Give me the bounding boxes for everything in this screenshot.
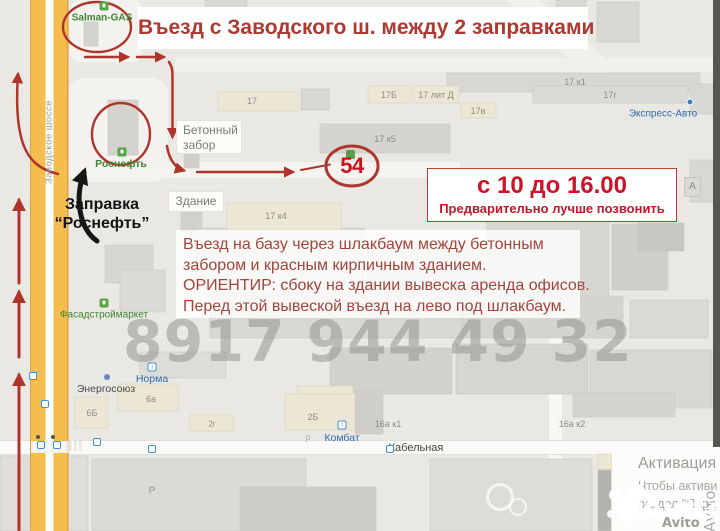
- directions-line3: ОРИЕНТИР: сбоку на здании вывеска аренда…: [183, 276, 580, 297]
- building-label-17g: 17г: [603, 90, 616, 100]
- marker-54: 54: [340, 153, 363, 179]
- kombat-poi-icon: ↕: [338, 421, 347, 430]
- avito-watermark-dot: [609, 489, 621, 501]
- building-label-6b: 6Б: [87, 408, 98, 418]
- bus-stop-icon: [386, 445, 394, 453]
- rosneft-poi-label: Роснефть: [95, 158, 147, 170]
- concrete-fence-label: Бетонный забор: [176, 120, 242, 154]
- screenshot-edge-strip: [713, 0, 720, 450]
- poi-label-kombat: Комбат: [324, 432, 359, 444]
- poi-label-express-avto: Экспресс-Авто: [629, 109, 697, 120]
- building-label-17b: 17Б: [381, 90, 397, 100]
- building-label-17k1: 17 к1: [564, 77, 585, 87]
- directions-line2: забором и красным кирпичным зданием.: [183, 256, 580, 277]
- entrance-title: Въезд с Заводского ш. между 2 заправками: [138, 7, 588, 49]
- bus-stop-icon: [41, 400, 49, 408]
- salman-gas-pump-icon: [100, 2, 109, 11]
- bus-stop-icon: [93, 438, 101, 446]
- directions-line1: Въезд на базу через шлакбаум между бетон…: [183, 235, 580, 256]
- building-label-2g: 2г: [208, 420, 215, 429]
- bus-stop-icon: [53, 441, 61, 449]
- rosneft-callout-line2: “Роснефть”: [44, 215, 160, 234]
- express-avto-poi-icon: [687, 99, 694, 106]
- rosneft-callout-line1: Заправка: [44, 196, 160, 215]
- working-hours-time: с 10 до 16.00: [428, 171, 676, 201]
- parking-label: Р: [149, 486, 156, 497]
- building-label-2b: 2Б: [308, 412, 319, 422]
- building-callout: Здание: [168, 191, 224, 212]
- annotated-map-screenshot: Заводское шоссе Кабельная 17 17Б 17 лит …: [0, 0, 720, 531]
- road-label-zavodskoe: Заводское шоссе: [44, 100, 55, 184]
- building-label-16ak2: 16а к2: [559, 419, 585, 429]
- poi-label-energosoyuz: Энергосоюз: [77, 383, 135, 395]
- building-label-17k5: 17 к5: [374, 134, 395, 144]
- building-label-17litd: 17 лит Д: [418, 90, 454, 100]
- working-hours-box: с 10 до 16.00 Предварительно лучше позво…: [427, 168, 677, 222]
- energosoyuz-poi-icon: [104, 374, 110, 380]
- salman-gas-label: Salman-GAS: [72, 13, 133, 24]
- avito-watermark-dot: [607, 510, 615, 518]
- phone-watermark: 8917 944 49 32: [123, 309, 633, 375]
- parking-label-small: р: [305, 432, 310, 442]
- street-label-kabelnaya: Кабельная: [389, 442, 444, 454]
- bus-stop-icon: [29, 372, 37, 380]
- avito-watermark-ring: [509, 498, 527, 516]
- fasadstroymarket-poi-icon: [100, 299, 109, 308]
- building-label-6a: 6а: [146, 394, 156, 404]
- working-hours-note: Предварительно лучше позвонить: [428, 201, 676, 216]
- activation-title: Активация: [638, 455, 716, 473]
- building-label-16ak1: 16а к1: [375, 419, 401, 429]
- rosneft-callout: Заправка “Роснефть”: [44, 196, 160, 233]
- bus-stop-icon: [148, 445, 156, 453]
- bus-stop-icon: [37, 441, 45, 449]
- building-label-17v: 17в: [471, 106, 486, 116]
- cutoff-label-a: А: [684, 177, 701, 197]
- directions-line4: Перед этой вывеской въезд на лево под шл…: [183, 297, 580, 318]
- building-label-17k4: 17 к4: [265, 211, 286, 221]
- rosneft-pump-icon: [118, 148, 127, 157]
- building-label-17: 17: [247, 96, 257, 106]
- avito-watermark-text: Avito: [641, 492, 720, 527]
- directions-text-box: Въезд на базу через шлакбаум между бетон…: [176, 230, 580, 318]
